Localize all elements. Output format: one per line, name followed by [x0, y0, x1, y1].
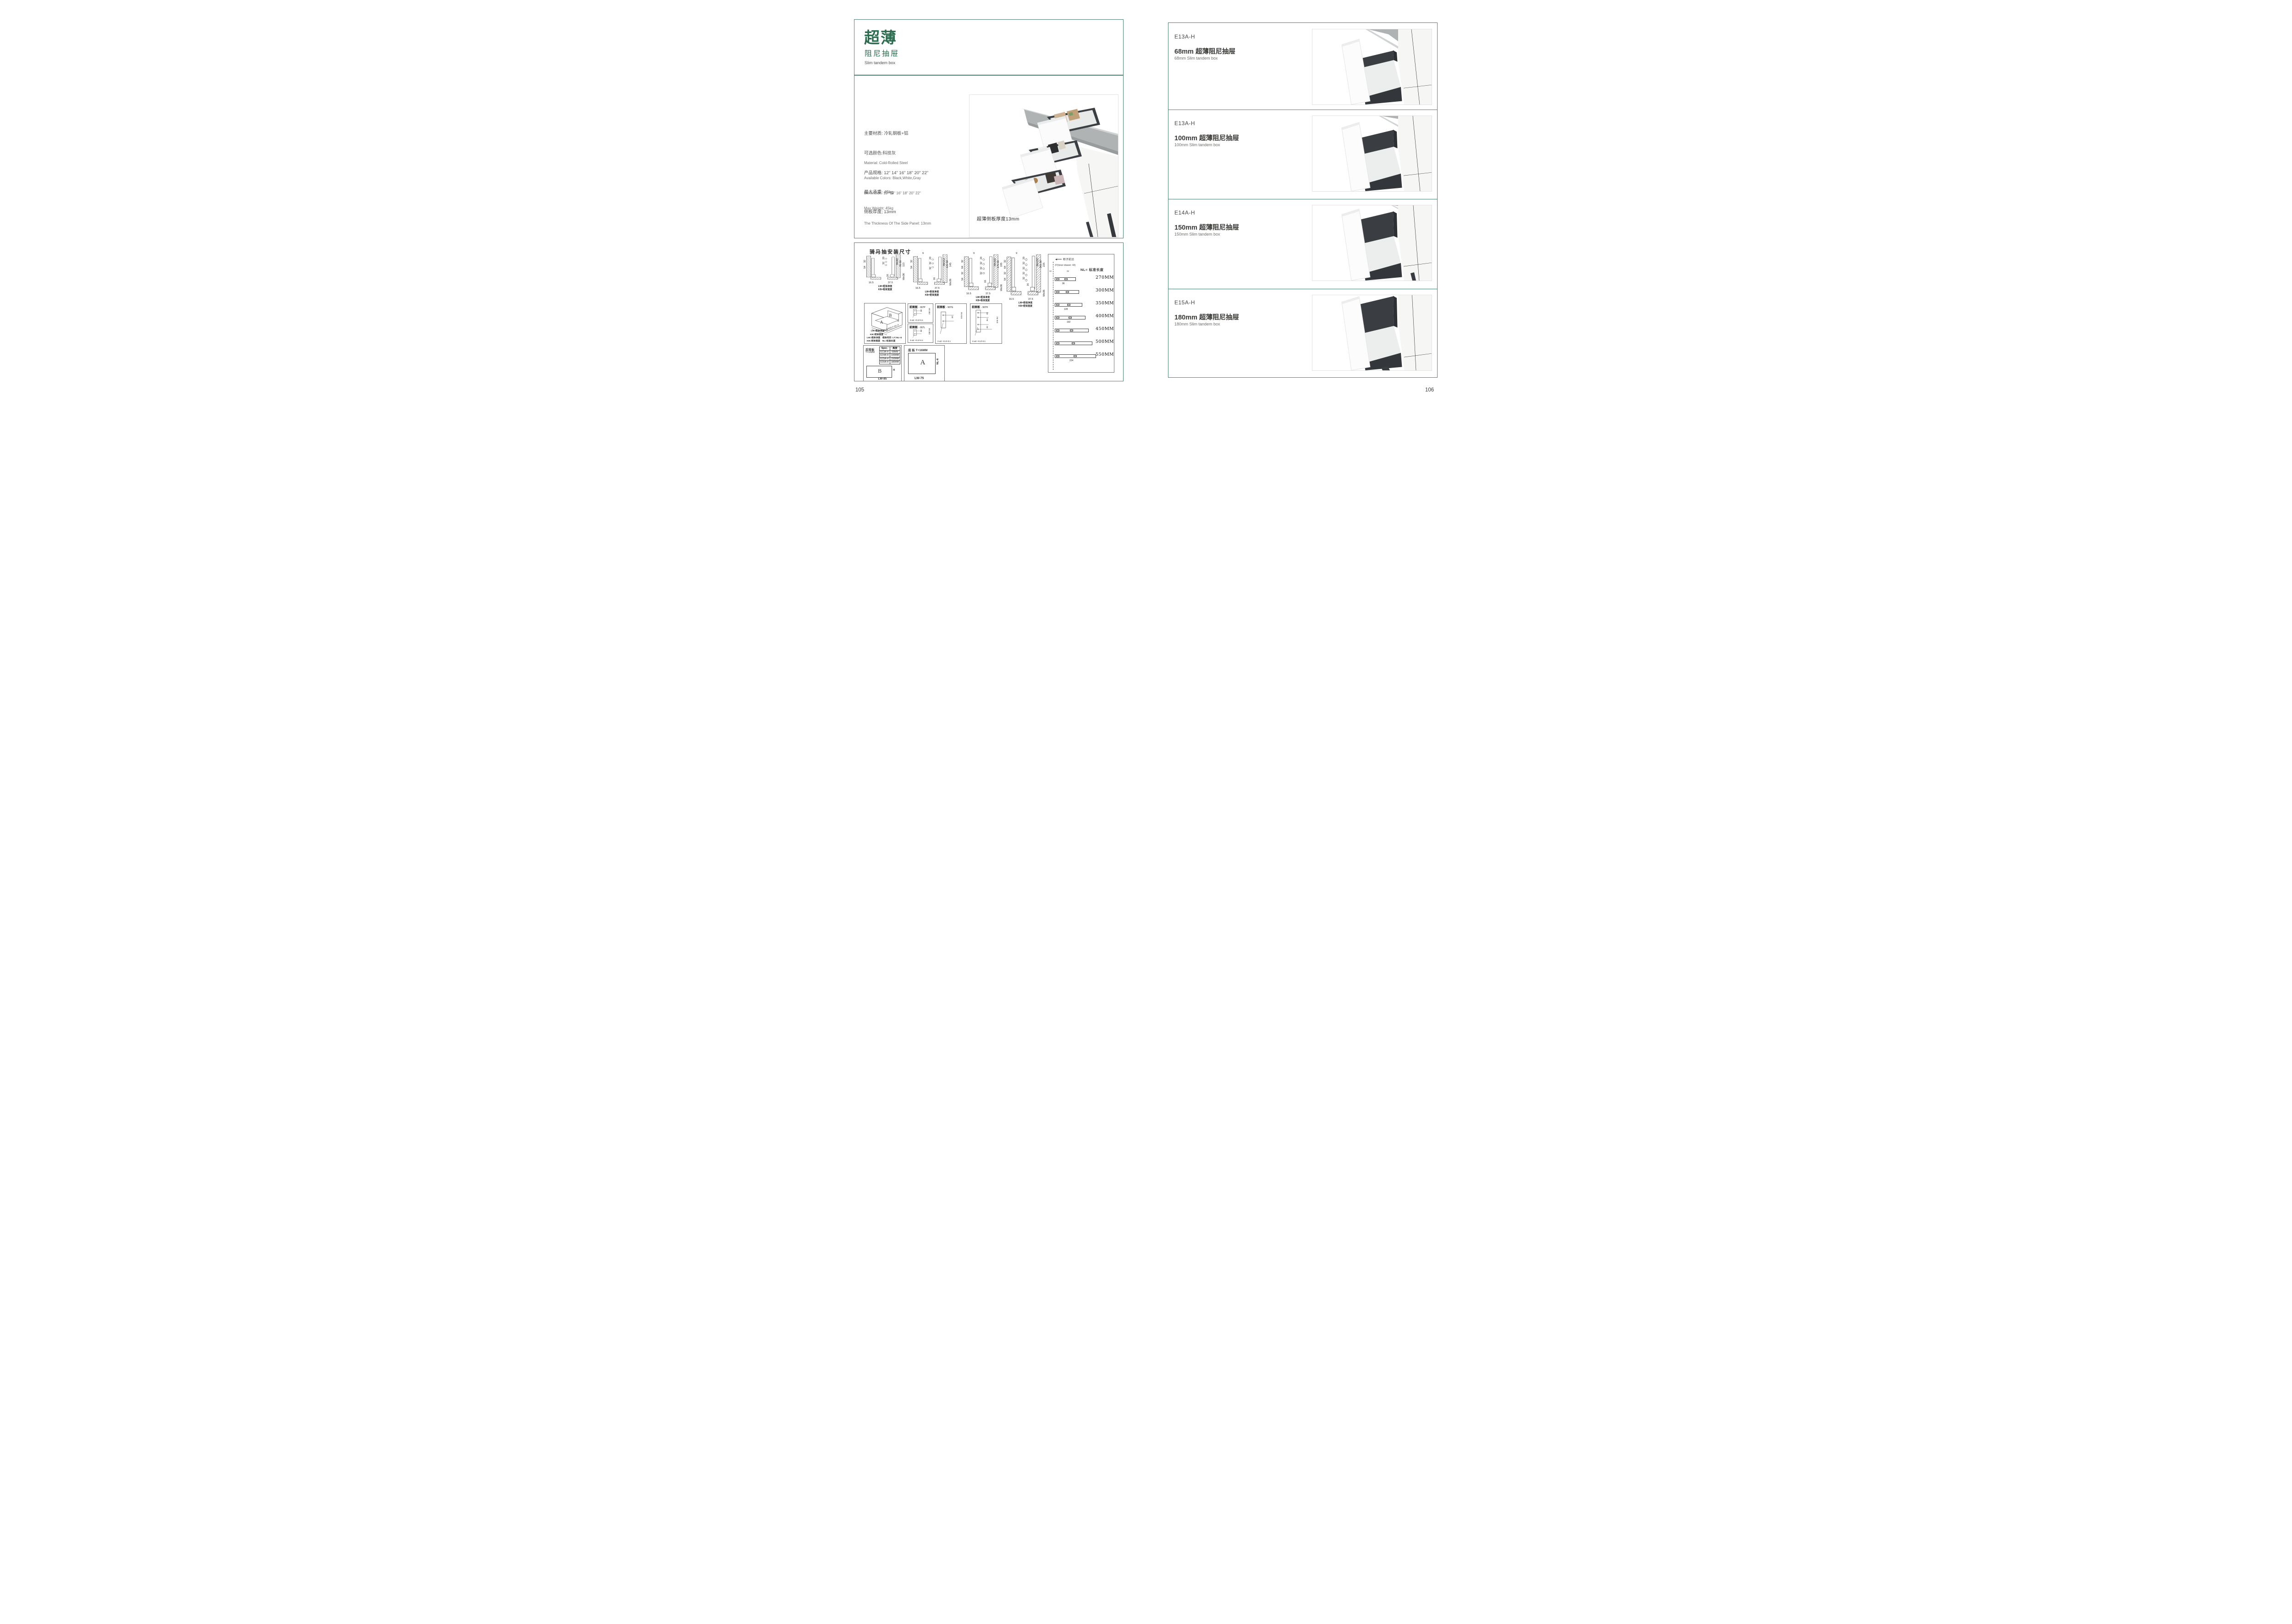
dim-label: 16 — [985, 280, 987, 283]
bottom-panel-box: 底 板 T=16MM A NL-6 LW-75 — [904, 345, 945, 381]
page-subtitle-cn: 阻尼抽屉 — [865, 47, 899, 58]
dim-label: 225 — [1043, 263, 1046, 267]
slide-rail — [1055, 303, 1082, 307]
dim-label: 64 — [987, 319, 989, 321]
hole-spec: 4-ø2 +0.2/-0.1 — [972, 340, 986, 342]
length-option: 450MM — [1096, 326, 1114, 331]
table-row: E15A-H150MM — [879, 357, 900, 361]
dim-label: 171.50 — [997, 260, 1000, 268]
dim-label: 16.5 — [869, 282, 874, 285]
dim-label: 32 — [981, 262, 983, 264]
back-panel-thickness: T=16MM — [865, 351, 875, 354]
spec-table-header: Spec. — [879, 347, 890, 351]
spec-line: 主要材质: 冷轧钢板+铝 — [864, 131, 928, 137]
dim-label: LW=柜体净宽 — [1019, 302, 1032, 304]
dim-label: 20 — [883, 257, 886, 259]
drawer-render-180 — [1312, 295, 1432, 370]
product-code: E14A-H — [1174, 209, 1195, 216]
dim-label: 64 — [1004, 266, 1007, 269]
dim-label: 20 — [981, 257, 983, 259]
dim-label: 20 — [930, 257, 932, 259]
product-code: E13A-H — [1174, 120, 1195, 127]
table-row: E16A-H180MM — [879, 361, 900, 364]
cross-section-180: 9 20 32 32 32 32 32 64 32 54 16 Min192 2… — [1004, 254, 1047, 308]
dim-label: 32 — [1023, 272, 1026, 275]
page-title: 超薄 — [864, 25, 897, 48]
section-divider — [1168, 199, 1437, 199]
iso-legend-1: LW=柜体净宽 柜体内空: LT=NL+3 — [867, 336, 902, 339]
spec-table: Spec.高度 E13A-H68MM E14A-H100MM E15A-H150… — [879, 347, 900, 364]
product-title-cn: 100mm 超薄阻尼抽屉 — [1174, 133, 1239, 143]
table-row: E14A-H100MM — [879, 354, 900, 358]
dim-label: 32 — [952, 316, 954, 318]
dim-label: 96 — [1062, 282, 1065, 285]
dim-label: 32 — [911, 260, 914, 263]
product-photo-150mm — [1312, 205, 1432, 281]
length-option: 400MM — [1096, 314, 1114, 319]
dim-label: Min192 — [1037, 258, 1040, 266]
spec-line: Material: Cold-Rolled Steel — [864, 160, 931, 165]
dim-label: min 54 — [997, 317, 999, 323]
left-drawings-box: 骑马抽安装尺寸 9 20 32 32 54 — [854, 242, 1124, 381]
dim-label: 195 — [1001, 263, 1003, 267]
dim-label: 54 — [864, 266, 867, 269]
dim-label: 32 — [920, 309, 923, 312]
dim-label: min 54 — [929, 308, 931, 314]
front-panel-907G: 前面板- 907G 32 min 54 2-ø2 +0.2/-0.1 — [935, 303, 967, 344]
catalog-spread: 超薄 阻尼抽屉 Slim tandem box 主要材质: 冷轧钢板+铝 可选颜… — [835, 0, 1457, 406]
dim-label: 128 — [1064, 308, 1068, 311]
drawer-render-100 — [1312, 116, 1432, 191]
dim-label: LW-85 — [878, 377, 887, 380]
spec-line: Available Colors: Black,White,Gray — [864, 176, 931, 181]
hole-spec: 2-ø2 +0.2/-0.1 — [910, 319, 923, 321]
arrow-left-icon — [1056, 259, 1062, 259]
cabinet-front-edge-label: 柜子前沿 — [1063, 257, 1074, 261]
dim-label: 113 — [903, 263, 906, 267]
section-divider — [1168, 110, 1437, 110]
dim-label: 32 — [981, 272, 983, 275]
specs-english: Material: Cold-Rolled Steel Available Co… — [864, 150, 931, 236]
product-code: E13A-H — [1174, 33, 1195, 40]
spec-cell: E14A-H — [879, 354, 890, 358]
dim-label: 32 — [883, 262, 886, 264]
dim-label: 32 — [1004, 272, 1007, 275]
dim-label: 145 — [950, 263, 953, 267]
spec-cell: E15A-H — [879, 357, 890, 361]
dim-label: 32 — [1023, 277, 1026, 280]
panel-letter: A — [920, 359, 926, 367]
legend-text: NL=标准长度 — [882, 340, 895, 342]
dim-label: 37.5 — [935, 287, 940, 290]
legend-text: KB=柜体宽度 — [867, 340, 880, 342]
spec-cell: 100MM — [890, 354, 900, 358]
hole-spec: 2-ø2 +0.2/-0.1 — [937, 340, 951, 342]
dim-label: Min36 — [1001, 284, 1003, 291]
dim-label: 121.50 — [947, 260, 949, 268]
dim-label: 201.50 — [1040, 260, 1043, 268]
length-option: 300MM — [1096, 288, 1114, 293]
product-photo-main: 超薄侧板厚度13mm — [969, 94, 1118, 237]
spec-line: The Thickness Of The Side Panel: 13mm — [864, 221, 931, 226]
dim-label: 32 — [987, 312, 989, 314]
product-title-en: 68mm Slim tandem box — [1174, 56, 1218, 61]
iso-dim-kb: KB=柜体宽度 — [870, 333, 883, 336]
spec-line: Dimension: 12" 14" 16" 18" 20" 22" — [864, 191, 931, 196]
slide-rail — [1055, 316, 1085, 319]
dim-label: 37.5 — [888, 282, 893, 285]
reference-line — [1053, 262, 1053, 370]
dim-label: KB=柜体宽度 — [1019, 305, 1032, 308]
product-title-en: 100mm Slim tandem box — [1174, 143, 1220, 147]
left-header-box: 超薄 阻尼抽屉 Slim tandem box — [854, 19, 1124, 75]
dim-label: Min162 — [994, 258, 997, 266]
slide-rail — [1055, 354, 1096, 358]
dim-label: 16 — [934, 277, 937, 280]
length-option: 350MM — [1096, 301, 1114, 306]
dim-label: 224 — [1069, 359, 1073, 362]
dim-label: 32 — [1023, 262, 1026, 264]
dim-label: 16 — [1027, 283, 1030, 286]
dim-label: KB=柜体宽度 — [925, 294, 939, 297]
dim-label: 192 — [1067, 321, 1070, 324]
iso-cabinet-drawing: B A LW=柜体净宽 KB=柜体宽度 柜体内空LT=NL+3 LW=柜体净宽 … — [864, 303, 906, 344]
dim-label: 16.5 — [966, 293, 971, 296]
photo-caption: 超薄侧板厚度13mm — [977, 215, 1019, 222]
dim-label: LW=柜体净宽 — [976, 297, 990, 299]
dim-label: 32 — [987, 326, 989, 328]
spec-cell: 180MM — [890, 361, 900, 364]
length-option: 550MM — [1096, 352, 1114, 357]
slide-rail — [1055, 329, 1089, 332]
front-panel-907P: 前面板- 907P 32 min 54 2-ø2 +0.2/-0.1 — [908, 303, 933, 323]
dim-label: 54 — [1004, 278, 1007, 281]
dim-label: LW-75 — [915, 377, 924, 380]
dim-label: 32 — [1004, 260, 1007, 263]
dim-label: 64 — [962, 266, 964, 269]
panel-letter: B — [878, 368, 882, 374]
product-title-cn: 68mm 超薄阻尼抽屉 — [1174, 46, 1235, 56]
b-panel-rect: B — [866, 366, 892, 378]
dim-label: 16 — [887, 274, 890, 277]
cross-section-100: 9 20 32 32 32 54 16 Min112 121.50 145 Mi… — [911, 254, 953, 297]
dim-label: Min36 — [950, 279, 953, 286]
dim-label: 54 — [962, 278, 964, 281]
dim-label: 32 — [981, 267, 983, 270]
a-panel-rect: A — [908, 353, 936, 374]
front-panel-907L: 前面板- 907L 32 min 54 2-ø2 +0.2/-0.1 — [908, 324, 933, 343]
dim-label: 32 — [1023, 267, 1026, 270]
dim-label: 32 — [920, 330, 923, 332]
dim-label: 32 — [930, 267, 932, 270]
spec-line: Max Weight: 45kg — [864, 206, 931, 211]
spec-cell: E13A-H — [879, 350, 890, 354]
dim-label: 32 — [930, 262, 932, 264]
drawer-render-150 — [1312, 205, 1432, 281]
dim-label: H — [893, 369, 895, 372]
dim-label: 32 — [864, 260, 867, 263]
right-products-box: E13A-H 68mm 超薄阻尼抽屉 68mm Slim tandem box … — [1168, 22, 1438, 378]
dim-label: min 54 — [961, 312, 964, 319]
left-main-box: 主要材质: 冷轧钢板+铝 可选颜色:科技灰 产品规格: 12" 14" 16" … — [854, 75, 1124, 238]
slide-rail — [1055, 277, 1076, 281]
spec-cell: 150MM — [890, 357, 900, 361]
dim-label: 16.5 — [1009, 298, 1014, 301]
dim-label: 16.5 — [915, 287, 920, 290]
spec-cell: E16A-H — [879, 361, 890, 364]
dim-label: Min112 — [943, 258, 946, 266]
dim-label: Min36 — [903, 273, 906, 280]
back-panel-box: 后背板 T=16MM Spec.高度 E13A-H68MM E14A-H100M… — [863, 345, 902, 381]
product-photo-100mm — [1312, 116, 1432, 192]
inner-drawer-note: 37(Inner drawer: 43) — [1055, 264, 1075, 267]
iso-dim-lw: LW=柜体净宽 — [871, 329, 884, 332]
spec-cell: 68MM — [890, 350, 900, 354]
dim-label: Min36 — [1043, 290, 1046, 297]
dim-label: 91.50 — [900, 260, 903, 267]
iso-legend-2: KB=柜体宽度 NL=标准长度 — [867, 339, 895, 342]
product-title-cn: 150mm 超薄阻尼抽屉 — [1174, 222, 1239, 232]
product-title-cn: 180mm 超薄阻尼抽屉 — [1174, 312, 1239, 322]
front-panel-907H: 前面板- 907H 32 64 32 min 54 4-ø2 +0.2/-0.1 — [970, 303, 1002, 344]
product-photo-180mm — [1312, 295, 1432, 371]
dim-label: 32 — [962, 260, 964, 263]
table-row: E13A-H68MM — [879, 350, 900, 354]
dim-label: 9 — [1016, 253, 1017, 255]
length-option: 270MM — [1096, 275, 1114, 280]
length-option: 500MM — [1096, 339, 1114, 344]
page-subtitle-en: Slim tandem box — [865, 61, 895, 65]
back-panel-letter: B — [889, 313, 892, 318]
page-number-right: 106 — [1425, 387, 1434, 393]
product-title-en: 180mm Slim tandem box — [1174, 322, 1220, 326]
cross-section-68: 9 20 32 32 54 16 Min82 91.50 113 Min36 1… — [864, 254, 906, 291]
dim-label: 9 — [973, 253, 975, 255]
dim-label: 9 — [876, 253, 877, 255]
bottom-panel-title: 底 板 T=16MM — [908, 347, 927, 352]
dim-label: 32 — [962, 272, 964, 275]
nl-length-box: 柜子前沿 37(Inner drawer: 43) 32 32 NL= 标准长度… — [1048, 254, 1114, 373]
dim-label: KB=柜体宽度 — [878, 289, 892, 291]
bottom-panel-letter: A — [880, 320, 883, 325]
page-number-left: 105 — [855, 387, 864, 393]
dim-label: LW=柜体净宽 — [925, 291, 939, 293]
dim-label: LW=柜体净宽 — [878, 286, 892, 288]
dim-label: 9 — [922, 253, 924, 255]
hole-spec: 2-ø2 +0.2/-0.1 — [910, 339, 923, 341]
drawer-render-68 — [1312, 29, 1432, 105]
slide-rail — [1055, 290, 1079, 294]
cross-section-150: 9 20 32 32 32 32 64 32 54 16 Min162 171.… — [962, 254, 1004, 302]
dim-label: 20 — [1023, 257, 1026, 259]
product-title-en: 150mm Slim tandem box — [1174, 232, 1220, 237]
dim-label: NL-6 — [937, 358, 939, 364]
dim-label: 37.5 — [1028, 298, 1033, 301]
spec-table-header: 高度 — [890, 347, 900, 351]
product-code: E15A-H — [1174, 299, 1195, 306]
slide-rail — [1055, 341, 1092, 345]
nl-label: NL= 标准长度 — [1080, 267, 1103, 272]
dim-label: 32 — [1049, 270, 1052, 272]
dim-label: min 54 — [929, 328, 931, 335]
dim-label: 54 — [911, 266, 914, 269]
product-photo-68mm — [1312, 29, 1432, 105]
dim-label: KB=柜体宽度 — [976, 300, 990, 302]
dim-label: Min82 — [897, 258, 899, 265]
dim-label: 37.5 — [986, 293, 991, 296]
section-divider — [1168, 289, 1437, 289]
dim-label: 32 — [1067, 270, 1069, 272]
